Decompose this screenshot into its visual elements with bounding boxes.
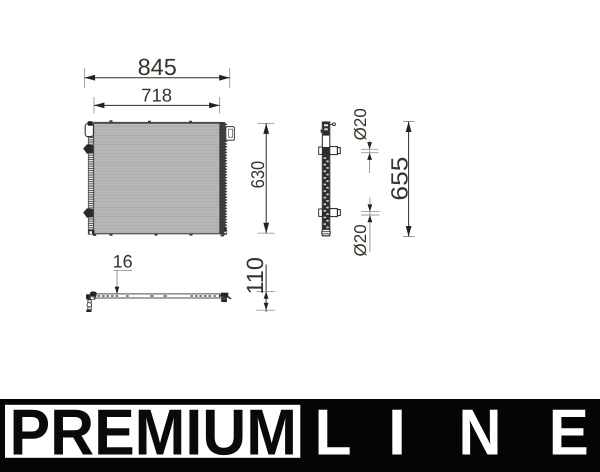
svg-text:I: I	[388, 396, 406, 469]
svg-text:845: 845	[138, 54, 177, 80]
svg-text:16: 16	[113, 252, 133, 272]
svg-text:Ø20: Ø20	[351, 108, 370, 140]
svg-text:110: 110	[242, 257, 268, 294]
svg-text:630: 630	[247, 161, 268, 189]
svg-text:E: E	[549, 396, 589, 469]
svg-text:L: L	[315, 396, 352, 469]
svg-text:718: 718	[141, 85, 172, 106]
svg-text:N: N	[459, 396, 502, 469]
svg-text:Ø20: Ø20	[351, 224, 370, 256]
svg-text:655: 655	[387, 157, 413, 201]
svg-text:PREMIUM: PREMIUM	[10, 396, 298, 469]
